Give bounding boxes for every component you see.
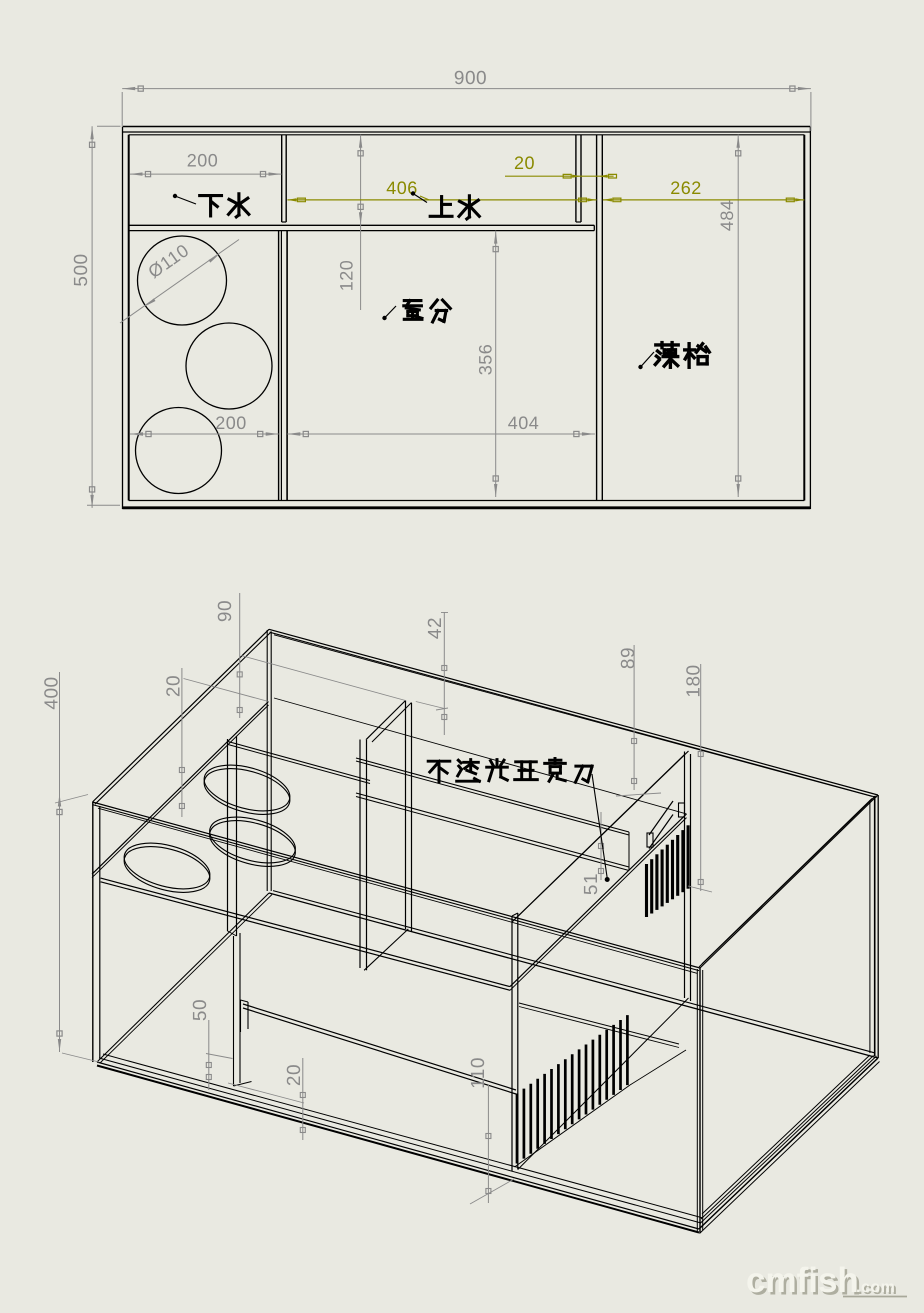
svg-text:.com: .com	[856, 1279, 895, 1296]
svg-text:900: 900	[454, 68, 487, 89]
svg-text:356: 356	[476, 344, 496, 376]
svg-text:90: 90	[215, 600, 236, 622]
svg-text:180: 180	[684, 664, 705, 697]
svg-text:400: 400	[42, 676, 63, 709]
svg-text:42: 42	[425, 617, 446, 639]
svg-text:484: 484	[717, 200, 737, 232]
svg-text:110: 110	[468, 1057, 489, 1089]
svg-text:404: 404	[508, 413, 540, 433]
svg-text:20: 20	[514, 153, 535, 173]
svg-text:50: 50	[190, 999, 211, 1021]
svg-text:cmfish: cmfish	[746, 1261, 859, 1300]
svg-text:500: 500	[71, 253, 92, 286]
svg-text:120: 120	[337, 260, 357, 292]
svg-text:200: 200	[215, 413, 247, 433]
svg-text:51: 51	[581, 873, 602, 895]
svg-text:262: 262	[670, 178, 702, 198]
svg-text:89: 89	[618, 647, 639, 669]
svg-text:20: 20	[284, 1064, 305, 1086]
svg-text:20: 20	[164, 675, 185, 697]
svg-text:200: 200	[187, 151, 219, 171]
